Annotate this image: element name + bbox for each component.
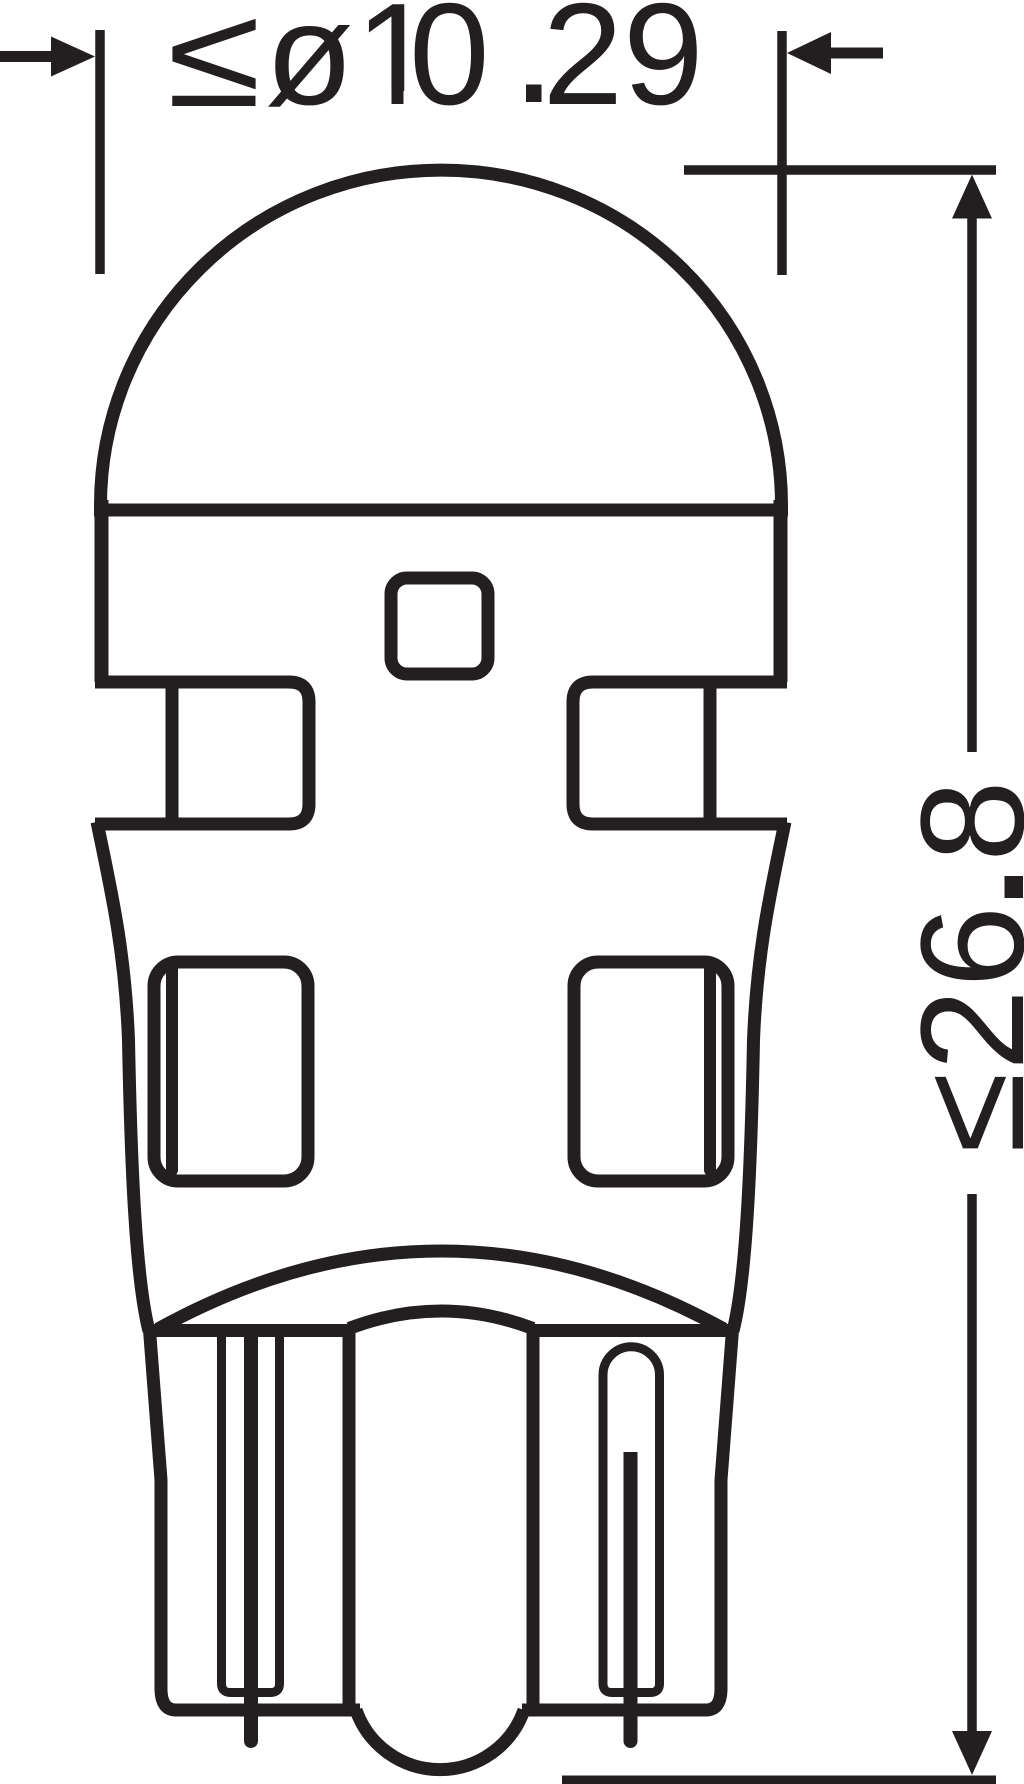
svg-text:0: 0: [409, 0, 490, 135]
svg-text:9: 9: [623, 0, 704, 135]
svg-text:2: 2: [543, 0, 624, 135]
svg-text:ø: ø: [265, 0, 354, 135]
svg-text:≤: ≤: [167, 0, 261, 137]
svg-text:≤26.8: ≤26.8: [891, 779, 1024, 1153]
